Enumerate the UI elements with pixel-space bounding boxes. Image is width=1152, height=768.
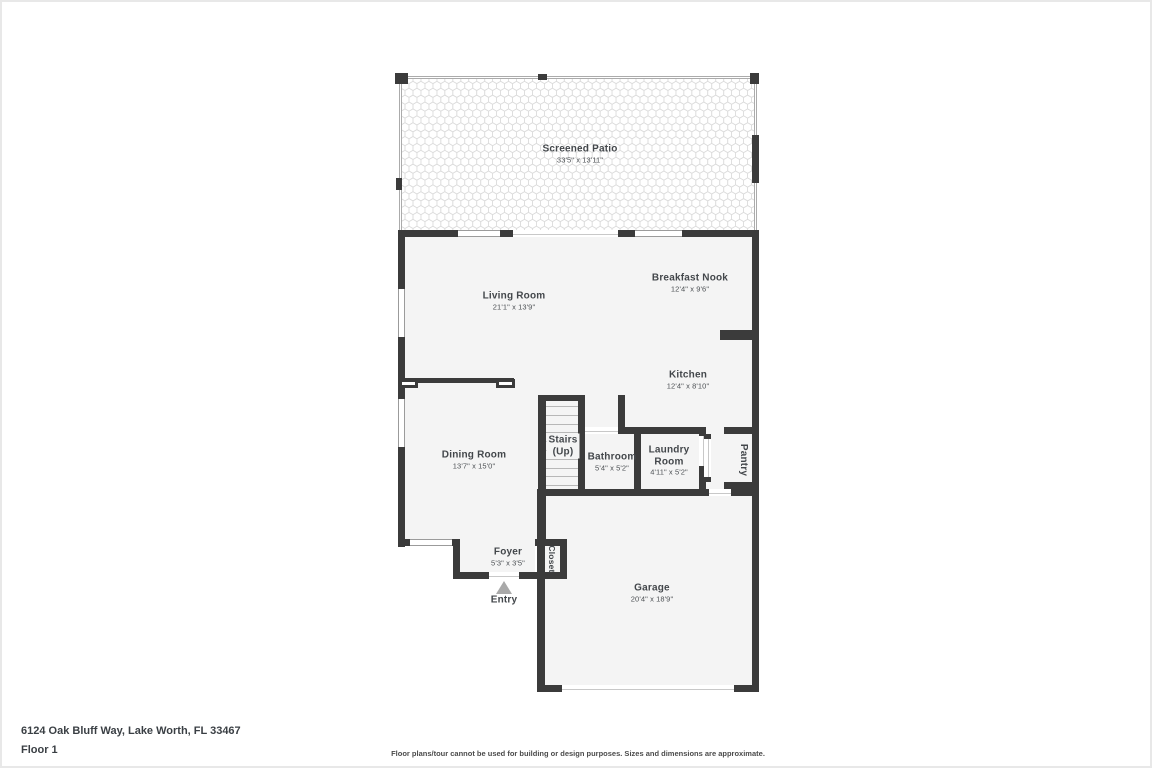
wall-pantry-bottom <box>724 482 759 489</box>
room-dims: 13'7" x 15'0" <box>442 461 506 471</box>
stair-tread <box>546 485 578 486</box>
wall-pantry-top <box>724 427 759 434</box>
floor-plan-page: Screened Patio 33'5" x 13'11" Living Roo… <box>0 0 1152 768</box>
window-top-1 <box>458 230 500 237</box>
patio-screen-wall-left <box>399 76 402 230</box>
room-name: Pantry <box>737 444 749 476</box>
address-text: 6124 Oak Bluff Way, Lake Worth, FL 33467 <box>21 725 241 737</box>
wall-garage-bottom-left-stub <box>537 685 562 692</box>
entry-arrow-icon <box>496 581 512 594</box>
label-entry: Entry <box>491 594 518 606</box>
bathroom-door <box>585 427 618 434</box>
room-dims: 5'4" x 5'2" <box>588 463 637 473</box>
stair-tread <box>546 424 578 425</box>
patio-post-right-seg <box>752 135 759 183</box>
label-bathroom: Bathroom 5'4" x 5'2" <box>588 451 637 473</box>
wall-kitchen-stub <box>720 330 752 340</box>
patio-post-top-left <box>395 73 408 84</box>
room-dims: 33'5" x 13'11" <box>542 155 617 165</box>
room-name: Living Room <box>483 290 546 302</box>
patio-screen-wall-top <box>398 76 759 79</box>
wall-top-d <box>682 230 759 237</box>
garage-entry-door <box>709 489 731 496</box>
wall-top-c <box>618 230 635 237</box>
room-name: Foyer <box>491 546 525 558</box>
room-name: Screened Patio <box>542 143 617 155</box>
label-foyer: Foyer 5'3" x 3'5" <box>491 546 525 568</box>
half-wall-cap-left-stripe <box>402 382 415 385</box>
garage-door-opening <box>562 685 734 692</box>
wall-top-a <box>398 230 458 237</box>
wall-top-b <box>500 230 513 237</box>
room-name: Dining Room <box>442 449 506 461</box>
label-living-room: Living Room 21'1" x 13'9" <box>483 290 546 312</box>
room-name: Entry <box>491 594 518 606</box>
wall-laundry-top <box>641 427 706 434</box>
room-dims: 20'4" x 18'9" <box>631 594 673 604</box>
label-dining-room: Dining Room 13'7" x 15'0" <box>442 449 506 471</box>
pantry-door <box>704 439 711 477</box>
label-laundry-room: Laundry Room 4'11" x 5'2" <box>649 445 690 478</box>
room-dims: 12'4" x 9'6" <box>652 284 728 294</box>
stair-tread <box>546 415 578 416</box>
room-name: Stairs <box>549 435 578 447</box>
patio-post-left-mid <box>396 178 402 190</box>
room-name: Breakfast Nook <box>652 272 728 284</box>
window-top-2 <box>635 230 682 237</box>
half-wall-cap-right-stripe <box>499 382 512 385</box>
room-dims: 4'11" x 5'2" <box>649 468 690 478</box>
label-breakfast-nook: Breakfast Nook 12'4" x 9'6" <box>652 272 728 294</box>
patio-post-top-mid <box>538 74 547 80</box>
stair-tread <box>546 476 578 477</box>
wall-closet-right <box>560 539 567 579</box>
room-dims: 5'3" x 3'5" <box>491 558 525 568</box>
room-name: Closet <box>545 545 557 572</box>
room-name: Bathroom <box>588 451 637 463</box>
wall-right-outer <box>752 230 759 692</box>
room-name: Room <box>649 456 690 468</box>
label-pantry: Pantry <box>737 444 749 476</box>
wall-garage-bottom-right-stub <box>734 685 759 692</box>
label-garage: Garage 20'4" x 18'9" <box>631 582 673 604</box>
room-name: Laundry <box>649 445 690 457</box>
disclaimer-text: Floor plans/tour cannot be used for buil… <box>391 749 765 758</box>
patio-slider-opening <box>513 230 618 237</box>
entry-door <box>489 572 519 579</box>
wall-foyer-bottom-left <box>453 572 489 579</box>
stair-tread <box>546 406 578 407</box>
window-living-left <box>398 289 405 337</box>
window-dining-left <box>398 399 405 447</box>
wall-garage-left <box>537 489 545 692</box>
stair-tread <box>546 459 578 460</box>
label-stairs: Stairs (Up) <box>547 434 580 459</box>
room-name: Kitchen <box>667 369 709 381</box>
label-screened-patio: Screened Patio 33'5" x 13'11" <box>542 143 617 165</box>
wall-left-outer <box>398 230 405 547</box>
label-closet: Closet <box>545 545 557 572</box>
label-kitchen: Kitchen 12'4" x 8'10" <box>667 369 709 391</box>
room-dims: 21'1" x 13'9" <box>483 302 546 312</box>
floor-label: Floor 1 <box>21 744 58 756</box>
patio-post-top-right <box>750 73 759 84</box>
stair-tread <box>546 468 578 469</box>
room-dims: 12'4" x 8'10" <box>667 381 709 391</box>
room-name: (Up) <box>549 446 578 458</box>
pantry-door-tick-top <box>704 434 711 439</box>
room-name: Garage <box>631 582 673 594</box>
pantry-door-tick-bottom <box>704 477 711 482</box>
window-dining-bottom <box>410 539 452 546</box>
